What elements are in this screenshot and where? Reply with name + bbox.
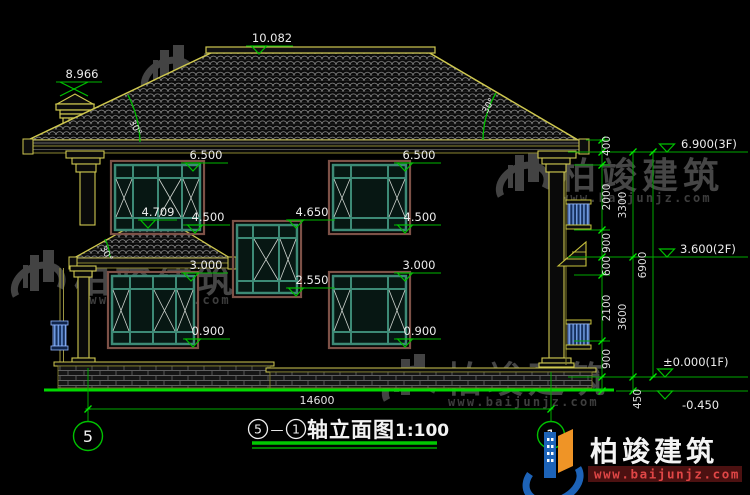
dim-total-height: 6900 [637,252,649,279]
brick-base-left [58,366,270,388]
dim-seg-900-upper: 900 [601,233,613,253]
level-label: 2.550 [296,273,329,287]
dim-seg-400: 400 [601,136,613,156]
level-label: 6.500 [403,148,436,162]
window-2f-left [111,161,204,234]
window-1f-left [108,272,198,348]
level-label: 4.709 [142,205,175,219]
cad-elevation-screenshot: 柏竣建筑 www.baijunjz.com 柏竣建筑 www.baijunjz.… [0,0,750,495]
elevation-drawing-canvas: 柏竣建筑 www.baijunjz.com 柏竣建筑 www.baijunjz.… [0,0,750,495]
level-label: 3.600(2F) [680,242,736,256]
level-label: 6.500 [190,148,223,162]
brick-base-right [270,372,592,388]
drawing-title: 5 — 1 轴立面图 1:100 [249,418,450,448]
level-label: 4.500 [404,210,437,224]
level-label: ±0.000(1F) [663,355,728,369]
level-label: 0.900 [404,324,437,338]
dim-seg-2000: 2000 [601,184,613,211]
side-vent-upper [566,200,591,229]
level-label: 4.500 [192,210,225,224]
dim-overall-width: 14600 [300,394,335,407]
window-stairwell [233,221,301,297]
brand-logo-name: 柏竣建筑 [590,435,718,468]
brand-logo-url: www.baijunjz.com [594,467,740,482]
level-label: 3.000 [403,258,436,272]
dim-seg-2100: 2100 [601,295,613,322]
eave-end-cap-left [23,139,33,154]
level-label: 3.000 [190,258,223,272]
watermark-url: www.baijunjz.com [448,395,599,409]
dim-floor2-height: 3600 [617,304,629,331]
dim-seg-600: 600 [601,256,613,276]
level-label: 0.900 [192,324,225,338]
level-label: 6.900(3F) [681,137,737,151]
dim-seg-900-lower: 900 [601,349,613,369]
side-vent-lower [566,320,591,349]
title-axis-from: 5 [254,422,262,437]
level-label: 4.650 [296,205,329,219]
level-label: 10.082 [252,31,292,45]
dim-seg-450: 450 [632,389,644,409]
level-label: -0.450 [682,398,719,412]
level-label: 8.966 [66,67,99,81]
window-1f-right [329,272,410,348]
axis-number: 5 [83,427,93,446]
plinth-ledge-right [266,368,596,372]
window-2f-right [329,161,410,234]
left-vent-box [51,321,68,350]
title-text: 轴立面图 [307,418,395,442]
title-axis-to: 1 [292,422,300,437]
title-scale: 1:100 [395,421,449,441]
ridge-cap [206,47,435,53]
plinth-ledge-left [54,362,274,366]
dim-floor3-height: 3300 [617,192,629,219]
title-axis-separator: — [271,423,284,438]
